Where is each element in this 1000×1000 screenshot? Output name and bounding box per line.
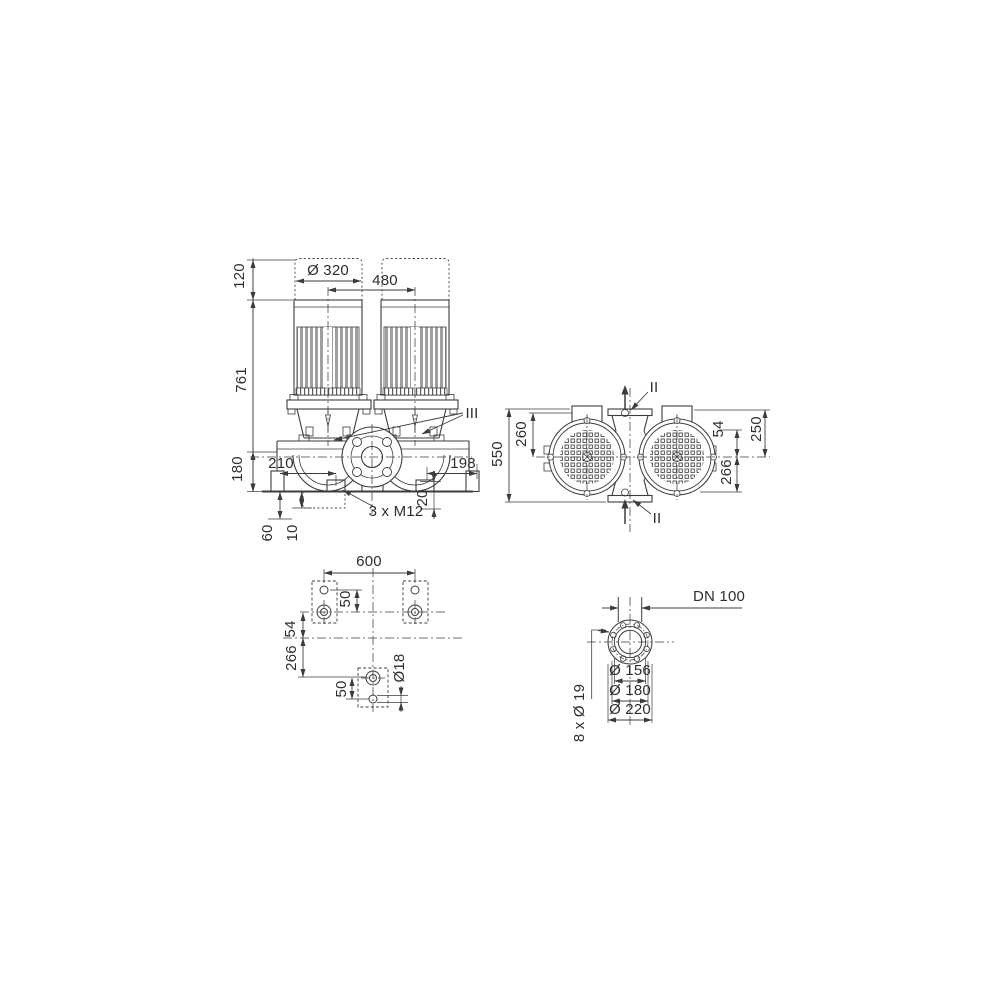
dim-label-hole-offset-top: 50 — [337, 587, 355, 611]
dim-label-foundation-10: 10 — [284, 521, 302, 545]
dim-label-bolt-offset-top: 54 — [710, 417, 728, 441]
dim-label-hole-offset-bottom: 50 — [333, 677, 351, 701]
dim-label-port-height: 180 — [229, 452, 247, 486]
dim-label-right-offset: 198 — [446, 455, 480, 473]
dim-label-axis-offset-54: 54 — [282, 617, 300, 641]
dim-label-nominal-diameter: DN 100 — [688, 588, 750, 606]
dim-label-axis-offset-266: 266 — [283, 641, 301, 675]
dim-label-motor-spacing: 480 — [365, 272, 405, 290]
dim-label-left-offset: 210 — [264, 455, 298, 473]
dim-label-top-to-axis: 260 — [513, 417, 531, 451]
dim-label-motor-diameter: Ø 320 — [293, 262, 363, 280]
section-label-ii-bottom: II — [647, 510, 667, 528]
bolt-holes-label: 8 x Ø 19 — [571, 681, 589, 745]
section-label-iii: III — [460, 405, 484, 423]
dim-label-bolt-circle-diameter: Ø 180 — [604, 682, 656, 700]
section-label-ii-top: II — [644, 379, 664, 397]
front-view — [250, 259, 479, 515]
dim-label-axis-to-bottom: 266 — [718, 455, 736, 489]
dim-label-raised-face-diameter: Ø 156 — [604, 662, 656, 680]
dim-label-foundation-60: 60 — [259, 521, 277, 545]
dim-label-hole-diameter: Ø18 — [391, 652, 409, 684]
foundation-view — [283, 568, 462, 712]
thread-label-m12: 3 x M12 — [365, 503, 427, 521]
drawing-linework — [0, 0, 1000, 1000]
dim-label-clearance-height: 120 — [231, 259, 249, 293]
dim-label-outer-diameter: Ø 220 — [604, 701, 656, 719]
dim-label-total-height: 761 — [233, 363, 251, 397]
dim-label-bolt-span: 600 — [347, 553, 391, 571]
dim-label-width-250: 250 — [748, 412, 766, 446]
technical-drawing-page: Ø 320 480 120 761 180 210 198 20 3 x M12… — [0, 0, 1000, 1000]
dim-label-total-length: 550 — [489, 437, 507, 471]
